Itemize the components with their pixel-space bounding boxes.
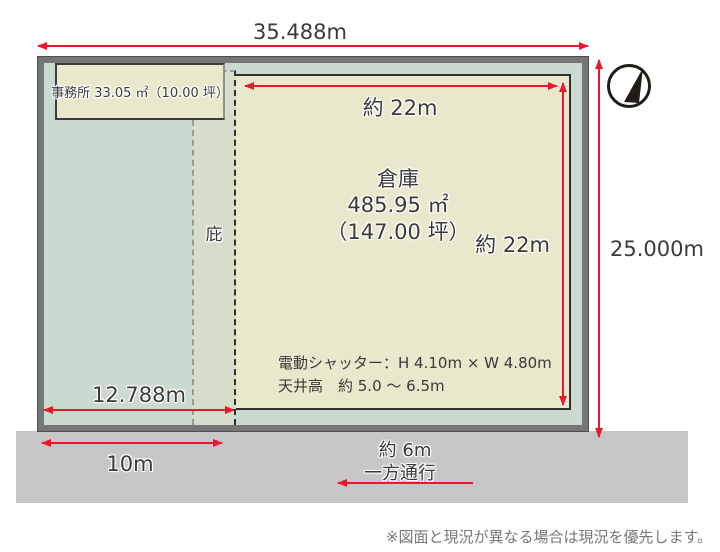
left-inner-width-arrow — [44, 409, 234, 411]
warehouse-width-label: 約 22m — [330, 92, 470, 122]
disclaimer-text: ※図面と現況が異なる場合は現況を優先します。 — [386, 526, 712, 547]
warehouse-name: 倉庫 — [283, 166, 513, 192]
road-frontage-arrow — [42, 442, 222, 444]
warehouse-height-arrow — [562, 83, 564, 405]
canopy-label: 庇 — [192, 220, 236, 245]
top-width-arrow — [38, 45, 588, 47]
shutter-note: 電動シャッター：H 4.10m × W 4.80m — [278, 352, 552, 373]
warehouse-height-label: 約 22m — [430, 229, 550, 259]
warehouse-width-arrow — [245, 85, 557, 87]
left-inner-width-label: 12.788m — [69, 383, 209, 407]
compass-icon — [605, 62, 653, 110]
canopy-strip — [192, 70, 236, 425]
top-width-label: 35.488m — [230, 20, 370, 44]
warehouse-area-m2: 485.95 ㎡ — [283, 192, 513, 218]
right-height-label: 25.000m — [610, 237, 704, 261]
office-label: 事務所 33.05 ㎡（10.00 坪） — [51, 82, 229, 101]
floor-plan: 事務所 33.05 ㎡（10.00 坪） 庇 倉庫 485.95 ㎡ （147.… — [0, 0, 720, 552]
road-frontage-label: 10m — [60, 452, 200, 476]
one-way-arrow-icon — [338, 482, 473, 484]
office-box: 事務所 33.05 ㎡（10.00 坪） — [55, 63, 225, 120]
right-height-arrow — [598, 60, 600, 437]
ceiling-note: 天井高 約 5.0 ～ 6.5m — [278, 375, 445, 396]
